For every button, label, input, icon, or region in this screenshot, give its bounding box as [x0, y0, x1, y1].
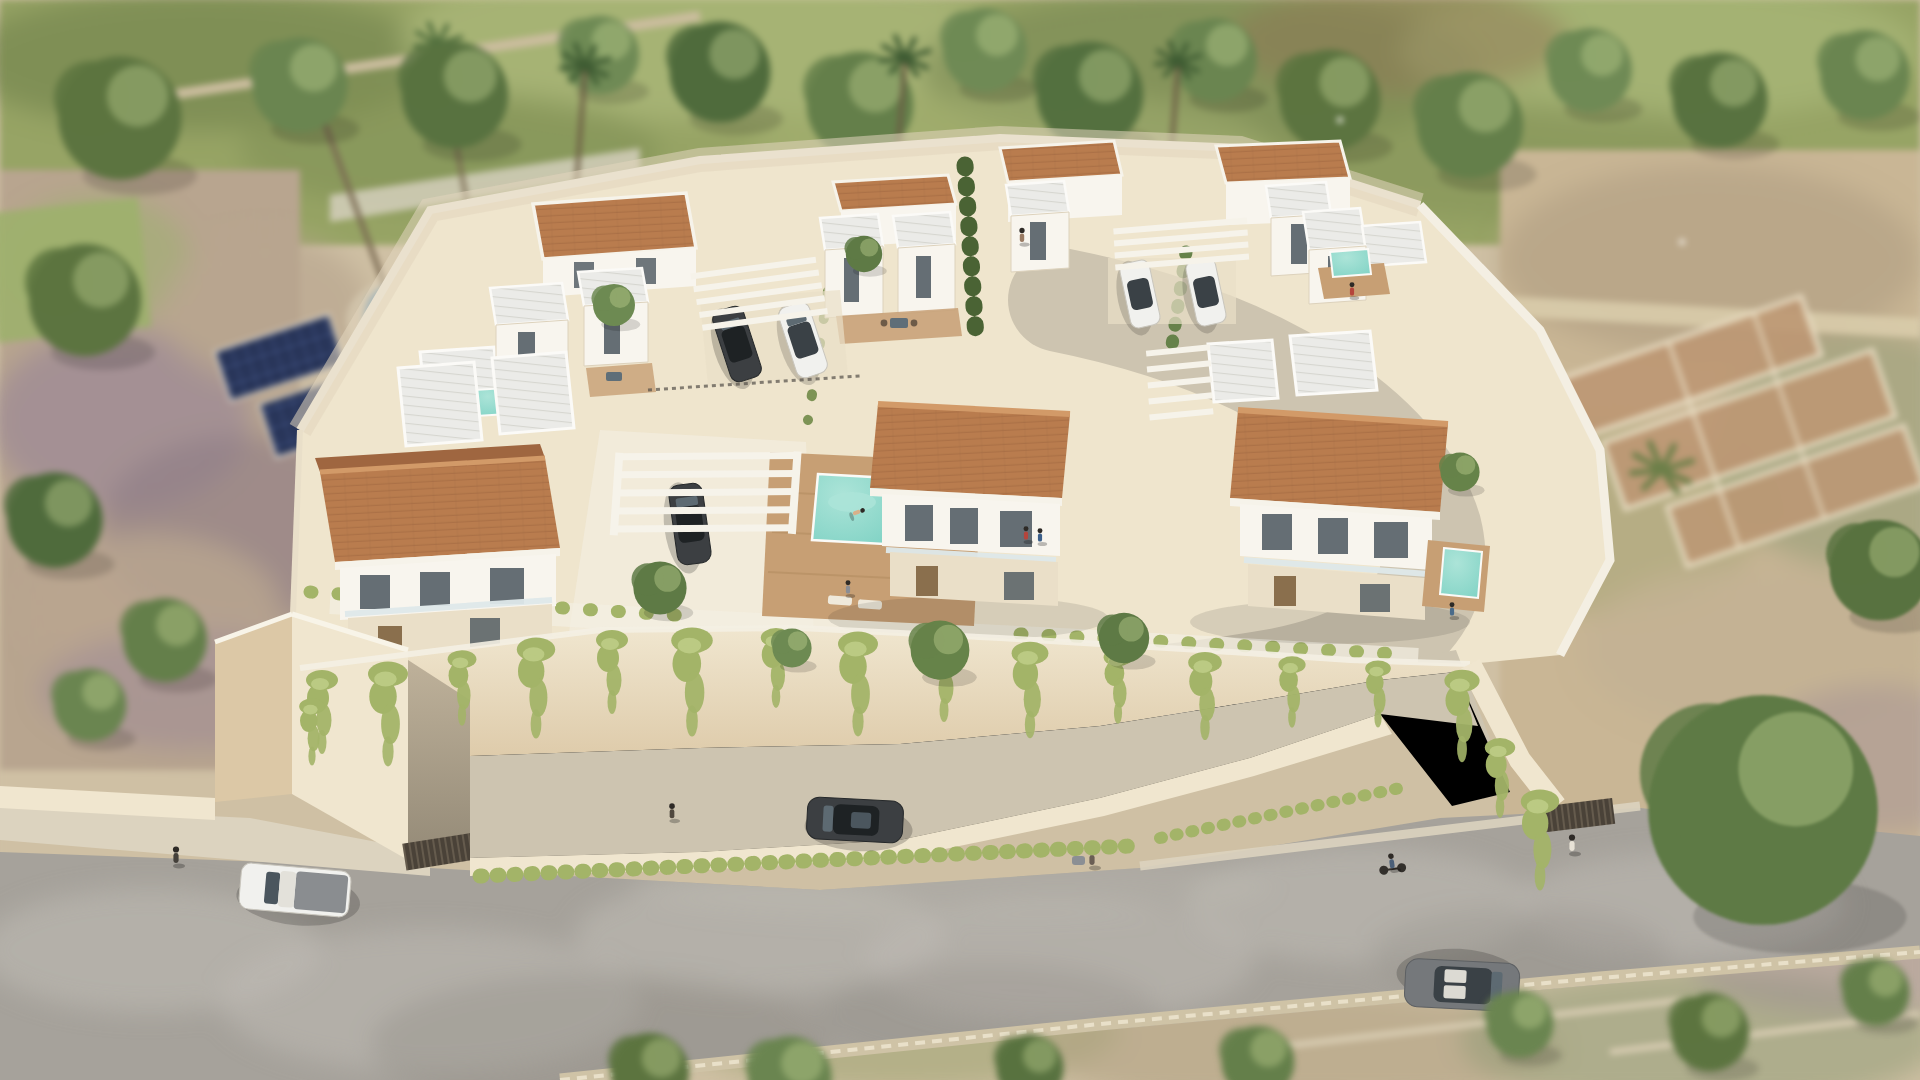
plunge-pool-right: Front-right villa plunge pool [1440, 548, 1482, 598]
gable-roof-front-slope [870, 404, 1070, 498]
facade-window [1262, 514, 1292, 550]
terrace-table [606, 372, 622, 381]
car-cabin-roof [277, 871, 296, 908]
terrace-table [890, 318, 908, 328]
white-bird [1337, 117, 1343, 123]
wall-corner-face-shaded [215, 614, 292, 802]
white-roof-box [398, 362, 482, 446]
ground-window [1360, 584, 1390, 612]
stroller [1072, 856, 1085, 865]
ground-door [916, 566, 938, 596]
facade-window [1374, 522, 1408, 558]
pickup-bed-cover [293, 871, 348, 913]
pergola-front-center [609, 443, 801, 543]
pool-water [1440, 548, 1482, 598]
stair-tower-roof [893, 212, 955, 248]
stair-tower-roof [1006, 181, 1069, 216]
car-sunroof-panel [1444, 969, 1467, 983]
white-roof-box [1290, 331, 1377, 395]
facade-window [905, 505, 933, 541]
car-windshield [264, 871, 281, 904]
terrace-chair [911, 320, 918, 327]
pool-ripple [828, 492, 876, 512]
facade-window [360, 575, 390, 609]
white-roof-box [1208, 340, 1278, 402]
tower-window [916, 256, 931, 298]
tower-window [1030, 222, 1046, 260]
facade-window [490, 568, 524, 604]
terracotta-flat-roof [533, 193, 696, 259]
architectural-render: Aerial 3D architectural rendering of a g… [0, 0, 1920, 1080]
ground-window [1004, 572, 1034, 600]
ground-door [1274, 576, 1296, 606]
plunge-pool-east: East villa plunge pool [1330, 249, 1371, 277]
terracotta-flat-roof [1216, 141, 1350, 183]
facade-window [950, 508, 978, 544]
gable-roof-front-slope [1230, 410, 1448, 512]
white-roof-box [492, 352, 574, 434]
car-roof-glass [851, 812, 872, 829]
white-roof-box [1362, 222, 1426, 266]
pool-water [1330, 249, 1371, 277]
car-sunroof-panel [1443, 985, 1466, 999]
stair-tower-roof [490, 283, 568, 325]
facade-window [420, 572, 450, 606]
white-roof-box [1303, 208, 1366, 250]
white-bird [1679, 239, 1685, 245]
car-windshield [822, 805, 833, 831]
terrace-chair [881, 320, 888, 327]
architectural-render-stage: Aerial 3D architectural rendering of a g… [0, 0, 1920, 1080]
gable-roof-front-slope [320, 458, 560, 562]
facade-window [1318, 518, 1348, 554]
